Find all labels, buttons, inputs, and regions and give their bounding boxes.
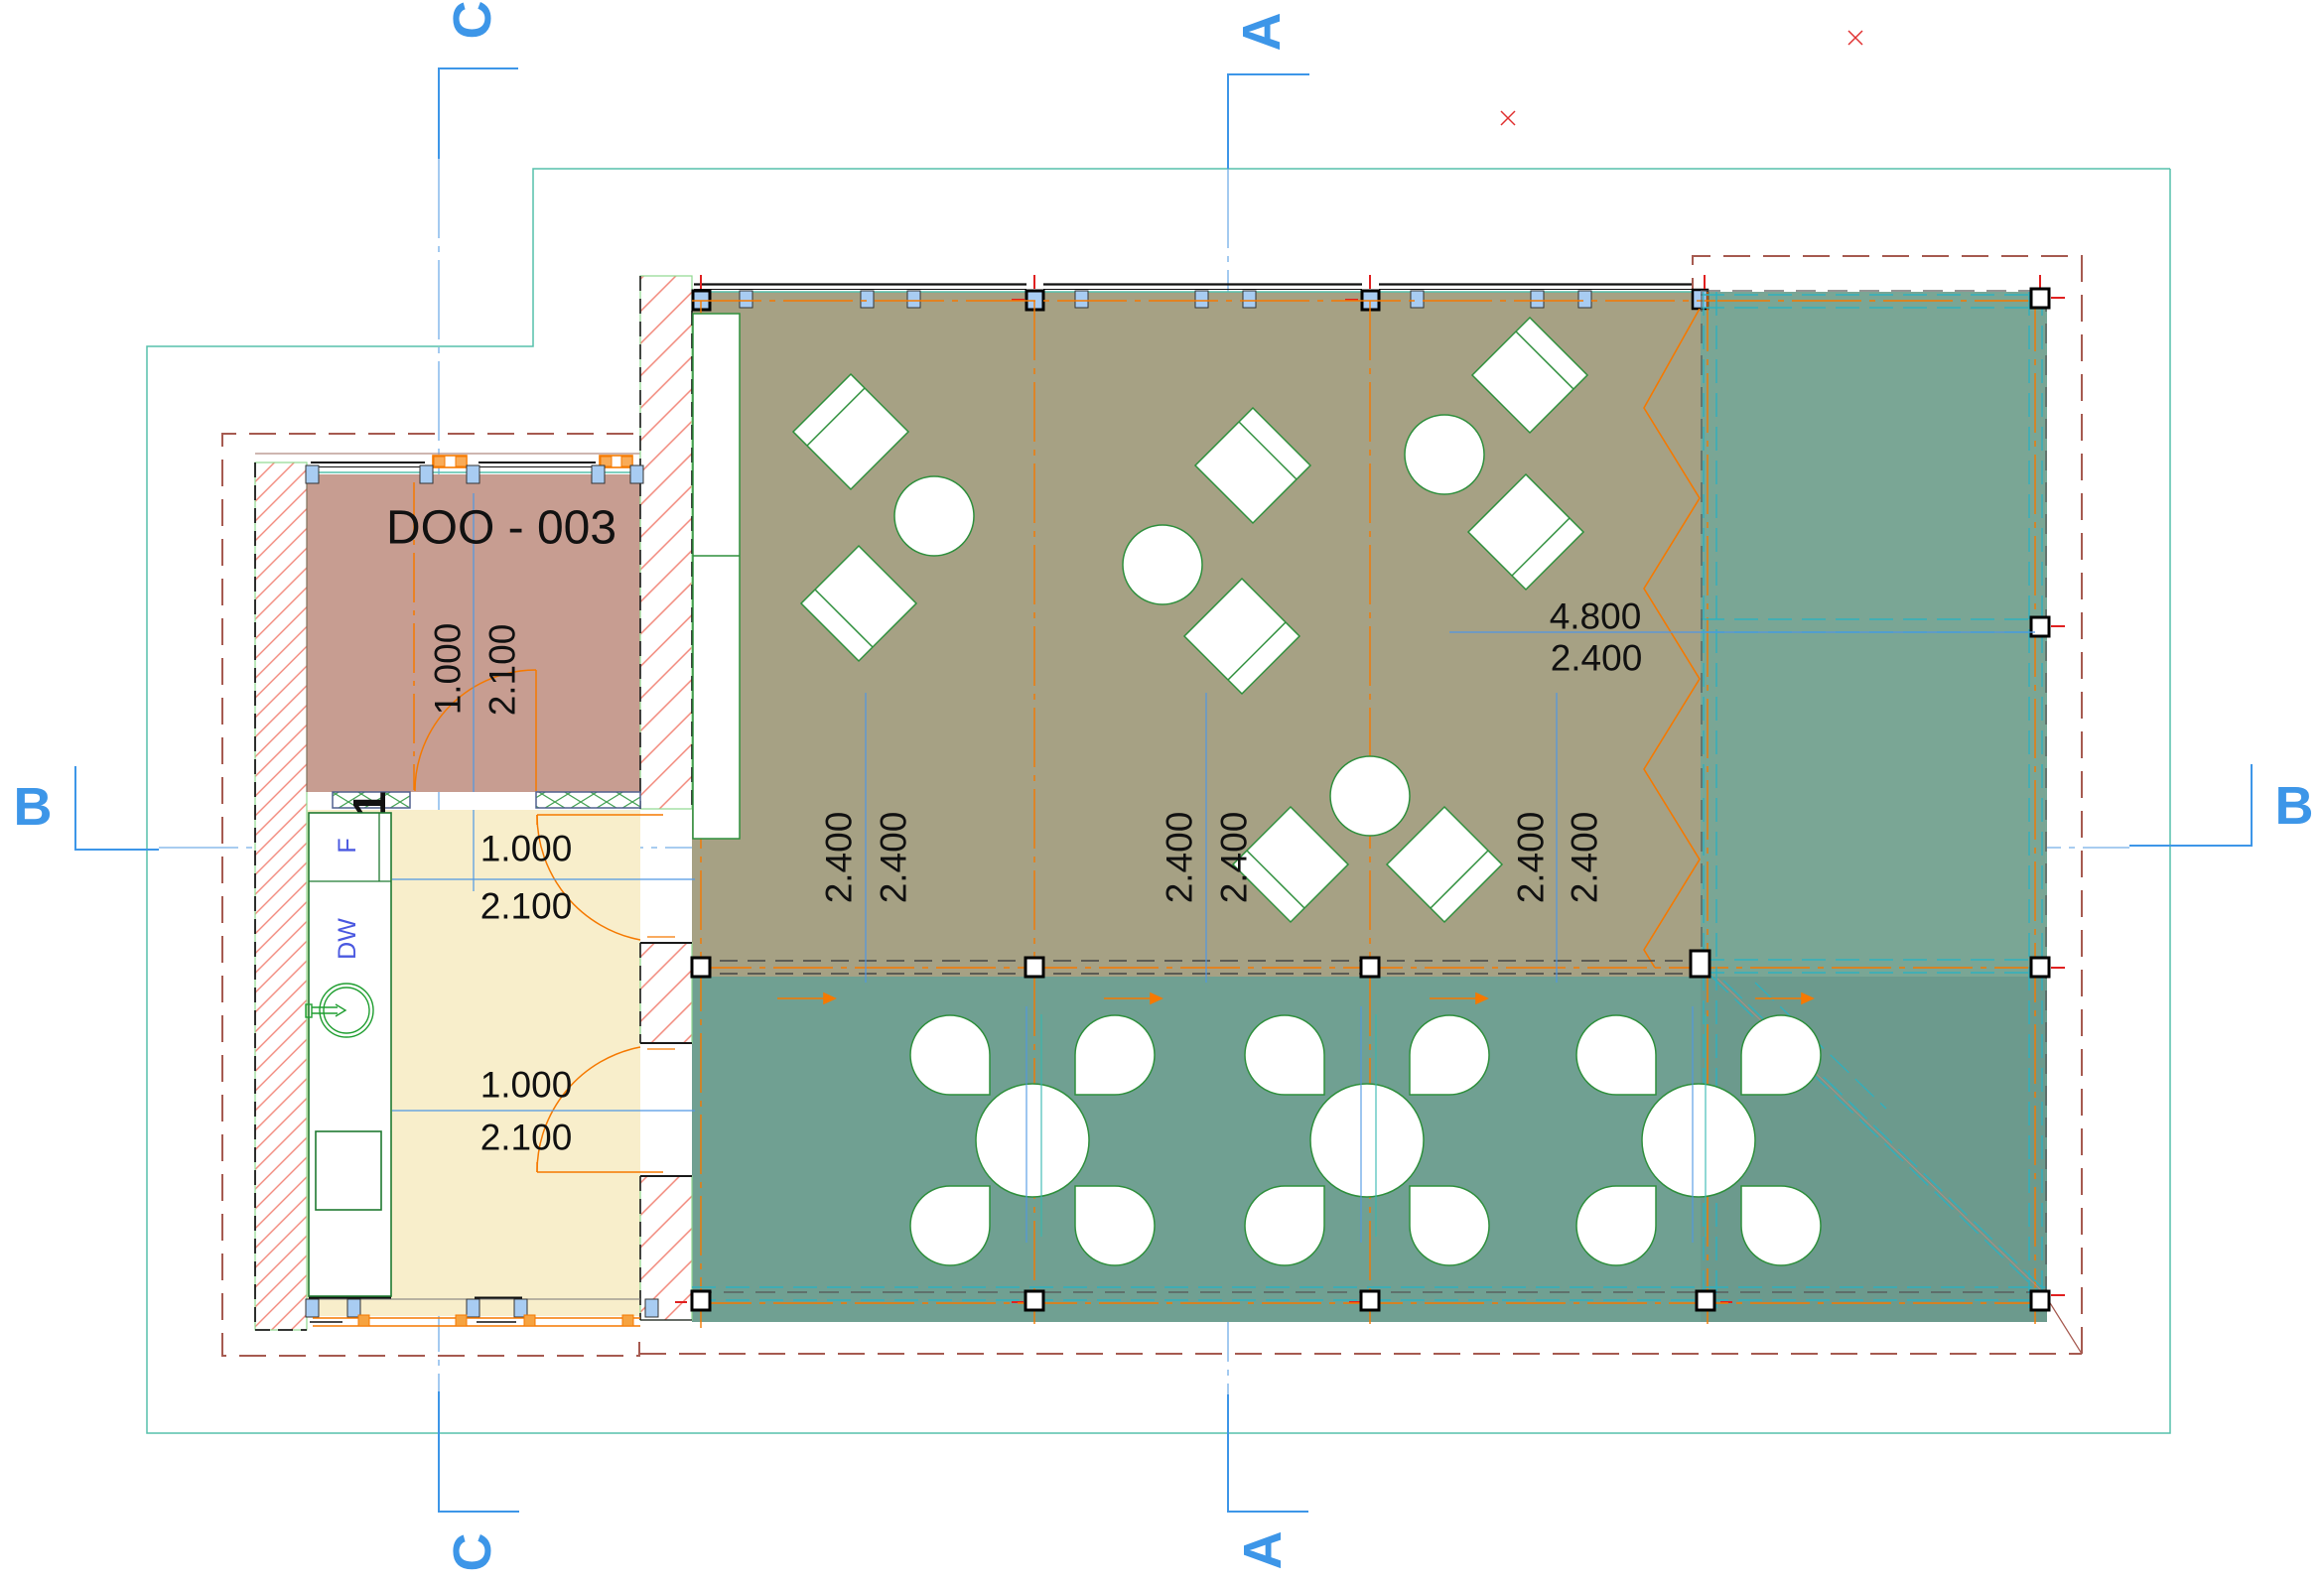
svg-text:2.400: 2.400 [1551,638,1643,679]
svg-text:1.000: 1.000 [428,623,469,716]
svg-text:2.400: 2.400 [1511,812,1552,904]
svg-text:2.100: 2.100 [480,1118,573,1158]
svg-text:2.400: 2.400 [1214,812,1255,904]
svg-text:2.400: 2.400 [1160,812,1200,904]
svg-text:2.400: 2.400 [1565,812,1605,904]
svg-text:2.400: 2.400 [819,812,860,904]
svg-text:A: A [1233,1531,1293,1570]
svg-text:2.100: 2.100 [482,624,523,717]
svg-text:B: B [2275,776,2314,836]
svg-text:2.400: 2.400 [874,812,914,904]
svg-text:C: C [443,1533,502,1572]
svg-text:1.000: 1.000 [480,829,573,869]
svg-text:4.800: 4.800 [1550,596,1642,637]
svg-text:F: F [334,838,361,853]
svg-text:A: A [1232,13,1292,52]
svg-text:B: B [14,777,53,837]
svg-text:DW: DW [334,918,361,960]
svg-text:2.100: 2.100 [480,886,573,927]
svg-text:C: C [443,1,502,40]
svg-text:DOO - 003: DOO - 003 [386,502,616,555]
svg-text:1.000: 1.000 [480,1065,573,1106]
